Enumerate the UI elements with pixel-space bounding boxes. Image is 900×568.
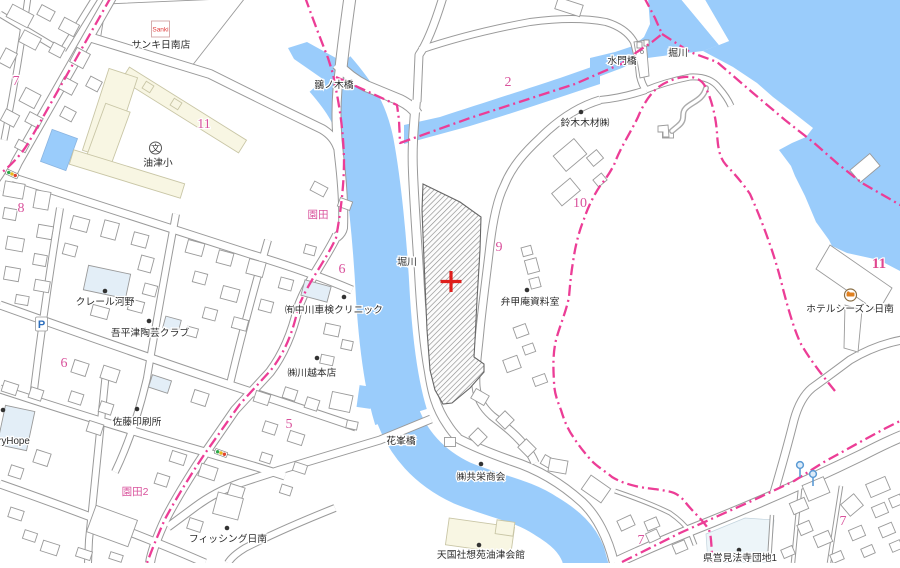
- svg-text:園田2: 園田2: [122, 486, 149, 498]
- svg-text:㈲中川車検クリニック: ㈲中川車検クリニック: [285, 303, 383, 316]
- svg-text:油津小: 油津小: [143, 156, 173, 169]
- svg-text:弁甲庵資料室: 弁甲庵資料室: [501, 295, 560, 308]
- svg-text:8: 8: [18, 201, 25, 216]
- svg-text:7: 7: [840, 514, 847, 529]
- svg-text:花峯橋: 花峯橋: [386, 434, 416, 447]
- svg-text:県営見法寺団地1: 県営見法寺団地1: [703, 551, 777, 563]
- svg-text:文: 文: [151, 143, 160, 154]
- svg-text:鈴木木材㈱: 鈴木木材㈱: [561, 116, 610, 129]
- svg-text:10: 10: [573, 196, 587, 211]
- svg-text:9: 9: [496, 240, 503, 255]
- svg-text:ホテルシーズン日南: ホテルシーズン日南: [806, 302, 894, 315]
- svg-text:天国社想苑油津会館: 天国社想苑油津会館: [437, 548, 525, 561]
- svg-text:吾平津陶芸クラブ: 吾平津陶芸クラブ: [111, 326, 190, 339]
- svg-text:フィッシング日南: フィッシング日南: [189, 532, 267, 545]
- svg-text:鶸ノ木橋: 鶸ノ木橋: [314, 78, 353, 91]
- svg-text:P: P: [38, 319, 45, 331]
- svg-text:園田: 園田: [308, 209, 329, 221]
- svg-text:佐藤印刷所: 佐藤印刷所: [113, 416, 162, 428]
- svg-text:6: 6: [61, 356, 68, 371]
- svg-text:掘川: 掘川: [668, 46, 688, 59]
- svg-text:7: 7: [13, 74, 20, 89]
- svg-text:11: 11: [872, 256, 886, 272]
- svg-text:7: 7: [638, 533, 645, 548]
- svg-text:Sanki: Sanki: [152, 27, 168, 34]
- svg-text:サンキ日南店: サンキ日南店: [132, 38, 191, 51]
- svg-text:11: 11: [197, 117, 210, 132]
- svg-text:水門橋: 水門橋: [607, 54, 637, 67]
- svg-text:クレール河野: クレール河野: [76, 296, 135, 308]
- svg-text:5: 5: [286, 417, 293, 432]
- svg-text:堀川: 堀川: [397, 256, 417, 268]
- svg-text:6: 6: [339, 262, 346, 277]
- svg-text:2: 2: [505, 75, 512, 90]
- svg-text:ryHope: ryHope: [0, 436, 30, 447]
- svg-text:㈱共栄商会: ㈱共栄商会: [457, 470, 506, 483]
- svg-text:㈱川越本店: ㈱川越本店: [288, 366, 337, 379]
